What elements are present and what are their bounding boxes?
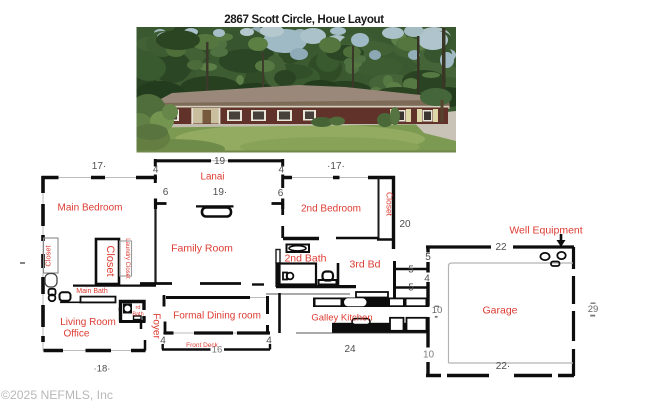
svg-text:4: 4 xyxy=(153,165,159,176)
svg-text:2nd Bath: 2nd Bath xyxy=(284,253,326,265)
svg-text:22: 22 xyxy=(495,242,507,253)
svg-text:17·: 17· xyxy=(92,161,106,172)
svg-text:4: 4 xyxy=(424,274,430,285)
svg-text:5: 5 xyxy=(408,283,414,294)
svg-text:19·: 19· xyxy=(213,187,227,198)
svg-text:©2025 NEFMLS, Inc: ©2025 NEFMLS, Inc xyxy=(1,388,113,402)
svg-text:Lanai: Lanai xyxy=(201,172,225,183)
svg-text:Well Equipment: Well Equipment xyxy=(509,225,582,237)
svg-text:5: 5 xyxy=(408,265,414,276)
svg-text:2867 Scott Circle, Houe Layout: 2867 Scott Circle, Houe Layout xyxy=(224,13,384,26)
svg-text:Main Bedroom: Main Bedroom xyxy=(57,203,122,214)
svg-text:Family Room: Family Room xyxy=(171,243,233,255)
svg-text:Garage: Garage xyxy=(482,305,517,317)
svg-text:Front Deck: Front Deck xyxy=(186,342,219,349)
svg-text:3rd Bd: 3rd Bd xyxy=(350,259,381,271)
svg-text:6: 6 xyxy=(278,188,284,199)
svg-text:4: 4 xyxy=(279,165,285,176)
svg-text:6: 6 xyxy=(163,187,169,198)
svg-text:10: 10 xyxy=(423,350,435,361)
svg-text:Closet: Closet xyxy=(104,245,116,276)
svg-text:Foyer: Foyer xyxy=(151,313,162,339)
svg-text:22·: 22· xyxy=(496,361,510,372)
svg-text:Formal Dining room: Formal Dining room xyxy=(173,311,261,322)
svg-text:5: 5 xyxy=(425,252,431,263)
svg-text:20: 20 xyxy=(399,219,411,230)
svg-text:4: 4 xyxy=(266,336,272,347)
svg-text:24: 24 xyxy=(344,344,356,355)
svg-text:Closet: Closet xyxy=(44,244,53,266)
svg-text:Living Room: Living Room xyxy=(60,317,116,328)
svg-text:·17·: ·17· xyxy=(327,161,345,172)
svg-text:19: 19 xyxy=(214,156,226,167)
svg-text:Galley Kitchen: Galley Kitchen xyxy=(311,313,372,324)
svg-text:Closet: Closet xyxy=(385,192,395,217)
svg-text:Main Bath: Main Bath xyxy=(76,288,108,295)
svg-text:Laundry Closet: Laundry Closet xyxy=(124,238,130,279)
svg-text:Office: Office xyxy=(64,329,90,340)
svg-text:·18·: ·18· xyxy=(94,364,111,375)
svg-text:rd: rd xyxy=(136,305,141,311)
svg-text:2nd Bedroom: 2nd Bedroom xyxy=(301,204,361,215)
svg-text:29: 29 xyxy=(588,304,599,315)
svg-text:Bath: Bath xyxy=(132,312,143,318)
svg-text:10: 10 xyxy=(432,305,443,316)
